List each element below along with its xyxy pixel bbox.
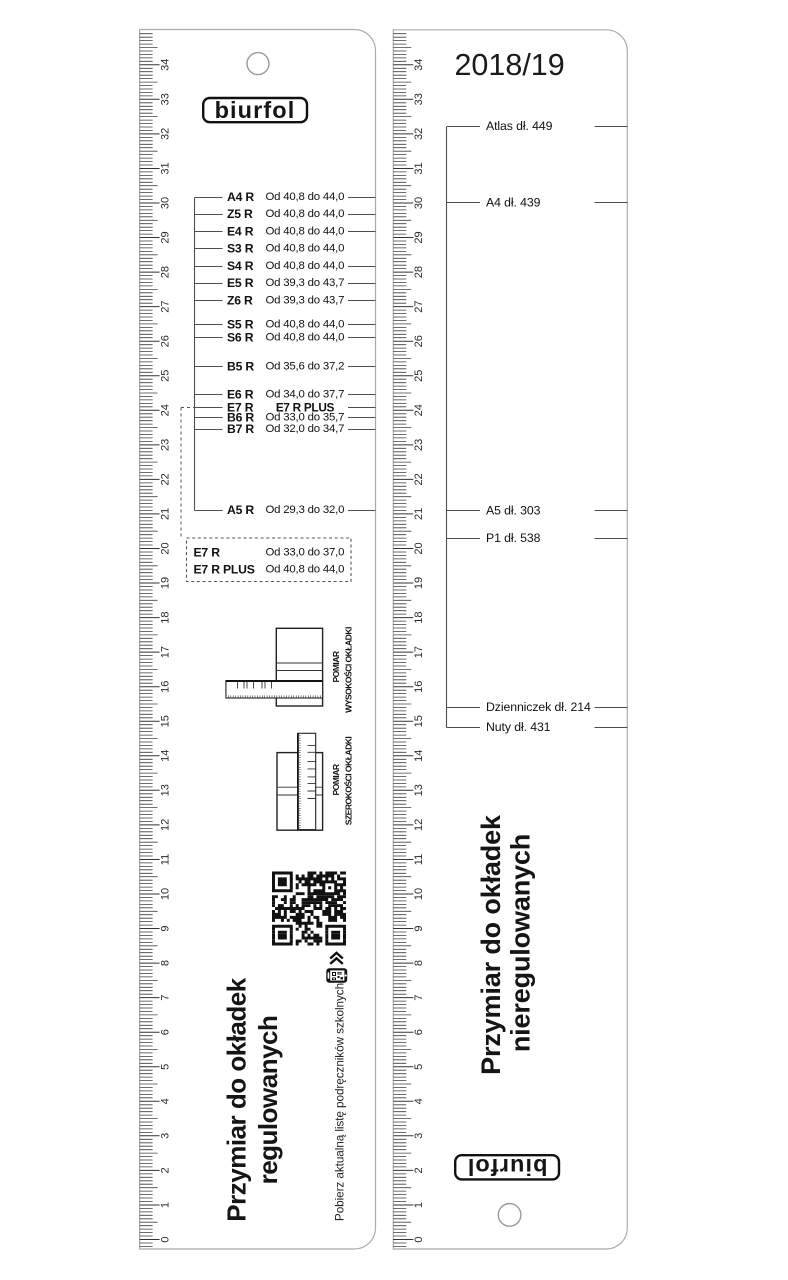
svg-text:Pobierz aktualną listę podręcz: Pobierz aktualną listę podręczników szko… (332, 983, 346, 1221)
svg-text:22: 22 (159, 473, 171, 485)
svg-text:S4 R: S4 R (227, 259, 254, 273)
svg-text:9: 9 (413, 925, 425, 931)
svg-text:14: 14 (159, 750, 171, 762)
svg-text:21: 21 (159, 508, 171, 520)
svg-text:A5 R: A5 R (227, 503, 254, 517)
svg-text:Od 39,3 do 43,7: Od 39,3 do 43,7 (266, 277, 345, 289)
svg-text:23: 23 (159, 439, 171, 451)
svg-text:Przymiar do okładek: Przymiar do okładek (476, 814, 506, 1075)
svg-text:S6 R: S6 R (227, 331, 254, 345)
svg-text:POMIAR: POMIAR (331, 763, 341, 795)
svg-text:3: 3 (413, 1133, 425, 1139)
svg-text:SZEROKOŚCI OKŁADKI: SZEROKOŚCI OKŁADKI (343, 737, 354, 826)
svg-text:1: 1 (413, 1202, 425, 1208)
svg-text:Od 40,8 do 44,0: Od 40,8 do 44,0 (266, 564, 345, 576)
svg-text:Od 39,3 do 43,7: Od 39,3 do 43,7 (266, 295, 345, 307)
svg-text:8: 8 (413, 960, 425, 966)
svg-text:Od 35,6 do 37,2: Od 35,6 do 37,2 (266, 361, 345, 373)
svg-text:34: 34 (159, 59, 171, 71)
svg-text:19: 19 (413, 577, 425, 589)
svg-text:Przymiar do okładek: Przymiar do okładek (222, 977, 252, 1221)
svg-text:E6 R: E6 R (227, 388, 254, 402)
svg-text:P1 dł. 538: P1 dł. 538 (486, 531, 541, 545)
svg-text:Od 29,3 do 32,0: Od 29,3 do 32,0 (266, 504, 345, 516)
svg-text:5: 5 (159, 1064, 171, 1070)
svg-text:5: 5 (413, 1064, 425, 1070)
svg-text:13: 13 (413, 784, 425, 796)
svg-text:10: 10 (413, 888, 425, 900)
svg-text:nieregulowanych: nieregulowanych (505, 834, 535, 1052)
svg-text:B5 R: B5 R (227, 360, 254, 374)
svg-text:28: 28 (159, 266, 171, 278)
svg-text:7: 7 (413, 995, 425, 1001)
svg-text:22: 22 (413, 473, 425, 485)
svg-text:Dzienniczek dł. 214: Dzienniczek dł. 214 (486, 700, 591, 714)
svg-text:4: 4 (159, 1098, 171, 1104)
svg-text:Od 40,8 do 44,0: Od 40,8 do 44,0 (266, 260, 345, 272)
svg-text:31: 31 (413, 162, 425, 174)
svg-text:0: 0 (413, 1236, 425, 1242)
svg-text:0: 0 (159, 1236, 171, 1242)
svg-text:Od 40,8 do 44,0: Od 40,8 do 44,0 (266, 243, 345, 255)
svg-text:17: 17 (413, 646, 425, 658)
svg-text:10: 10 (159, 888, 171, 900)
svg-text:18: 18 (413, 611, 425, 623)
svg-text:27: 27 (159, 300, 171, 312)
svg-text:19: 19 (159, 577, 171, 589)
svg-text:9: 9 (159, 925, 171, 931)
svg-text:biurfol: biurfol (467, 1154, 548, 1180)
svg-text:6: 6 (159, 1029, 171, 1035)
svg-text:3: 3 (159, 1133, 171, 1139)
svg-text:30: 30 (413, 197, 425, 209)
svg-text:16: 16 (159, 681, 171, 693)
svg-text:POMIAR: POMIAR (331, 650, 341, 682)
svg-text:Od 40,8 do 44,0: Od 40,8 do 44,0 (266, 332, 345, 344)
svg-text:29: 29 (159, 231, 171, 243)
svg-text:Od 40,8 do 44,0: Od 40,8 do 44,0 (266, 226, 345, 238)
svg-text:26: 26 (413, 335, 425, 347)
svg-text:Od 40,8 do 44,0: Od 40,8 do 44,0 (266, 319, 345, 331)
svg-text:20: 20 (413, 542, 425, 554)
svg-text:18: 18 (159, 611, 171, 623)
svg-text:31: 31 (159, 162, 171, 174)
svg-text:28: 28 (413, 266, 425, 278)
svg-text:Od 34,0 do 37,7: Od 34,0 do 37,7 (266, 389, 345, 401)
svg-text:11: 11 (413, 854, 425, 865)
svg-text:25: 25 (413, 370, 425, 382)
svg-text:4: 4 (413, 1098, 425, 1104)
svg-text:11: 11 (159, 854, 171, 865)
svg-text:27: 27 (413, 300, 425, 312)
svg-text:Od 33,0 do 37,0: Od 33,0 do 37,0 (266, 547, 345, 559)
svg-text:24: 24 (159, 404, 171, 416)
svg-text:7: 7 (159, 995, 171, 1001)
svg-text:Z6 R: Z6 R (227, 294, 253, 308)
svg-text:33: 33 (413, 93, 425, 105)
svg-text:29: 29 (413, 231, 425, 243)
svg-text:12: 12 (159, 819, 171, 831)
svg-text:17: 17 (159, 646, 171, 658)
svg-text:20: 20 (159, 542, 171, 554)
svg-text:WYSOKOŚCI OKŁADKI: WYSOKOŚCI OKŁADKI (343, 627, 354, 713)
svg-text:A4 dł. 439: A4 dł. 439 (486, 195, 541, 209)
svg-text:A5 dł. 303: A5 dł. 303 (486, 504, 541, 518)
svg-text:13: 13 (159, 784, 171, 796)
svg-text:S5 R: S5 R (227, 318, 254, 332)
svg-text:Od 32,0 do 34,7: Od 32,0 do 34,7 (266, 423, 345, 435)
svg-text:2018/19: 2018/19 (454, 48, 564, 82)
svg-text:34: 34 (413, 59, 425, 71)
svg-text:14: 14 (413, 750, 425, 762)
svg-text:A4 R: A4 R (227, 190, 254, 204)
svg-text:2: 2 (159, 1167, 171, 1173)
svg-text:Od 40,8 do 44,0: Od 40,8 do 44,0 (266, 208, 345, 220)
svg-text:B7 R: B7 R (227, 422, 254, 436)
svg-text:E7 R PLUS: E7 R PLUS (194, 563, 255, 577)
svg-text:E5 R: E5 R (227, 276, 254, 290)
svg-text:21: 21 (413, 508, 425, 520)
svg-text:23: 23 (413, 439, 425, 451)
svg-text:25: 25 (159, 370, 171, 382)
svg-text:16: 16 (413, 681, 425, 693)
svg-text:Atlas dł. 449: Atlas dł. 449 (486, 119, 553, 133)
svg-text:32: 32 (413, 128, 425, 140)
svg-text:24: 24 (413, 404, 425, 416)
svg-text:2: 2 (413, 1167, 425, 1173)
svg-text:32: 32 (159, 128, 171, 140)
svg-text:30: 30 (159, 197, 171, 209)
svg-text:6: 6 (413, 1029, 425, 1035)
svg-text:1: 1 (159, 1202, 171, 1208)
svg-text:Od 40,8 do 44,0: Od 40,8 do 44,0 (266, 191, 345, 203)
svg-text:E4 R: E4 R (227, 225, 254, 239)
svg-text:Z5 R: Z5 R (227, 207, 253, 221)
svg-text:8: 8 (159, 960, 171, 966)
svg-text:33: 33 (159, 93, 171, 105)
svg-text:15: 15 (159, 715, 171, 727)
svg-text:15: 15 (413, 715, 425, 727)
svg-text:regulowanych: regulowanych (253, 1016, 283, 1185)
svg-text:S3 R: S3 R (227, 242, 254, 256)
svg-text:Od 33,0 do 35,7: Od 33,0 do 35,7 (266, 412, 345, 424)
svg-text:E7 R: E7 R (194, 546, 221, 560)
svg-text:Nuty dł. 431: Nuty dł. 431 (486, 720, 551, 734)
svg-text:26: 26 (159, 335, 171, 347)
svg-text:biurfol: biurfol (215, 97, 296, 123)
svg-text:12: 12 (413, 819, 425, 831)
